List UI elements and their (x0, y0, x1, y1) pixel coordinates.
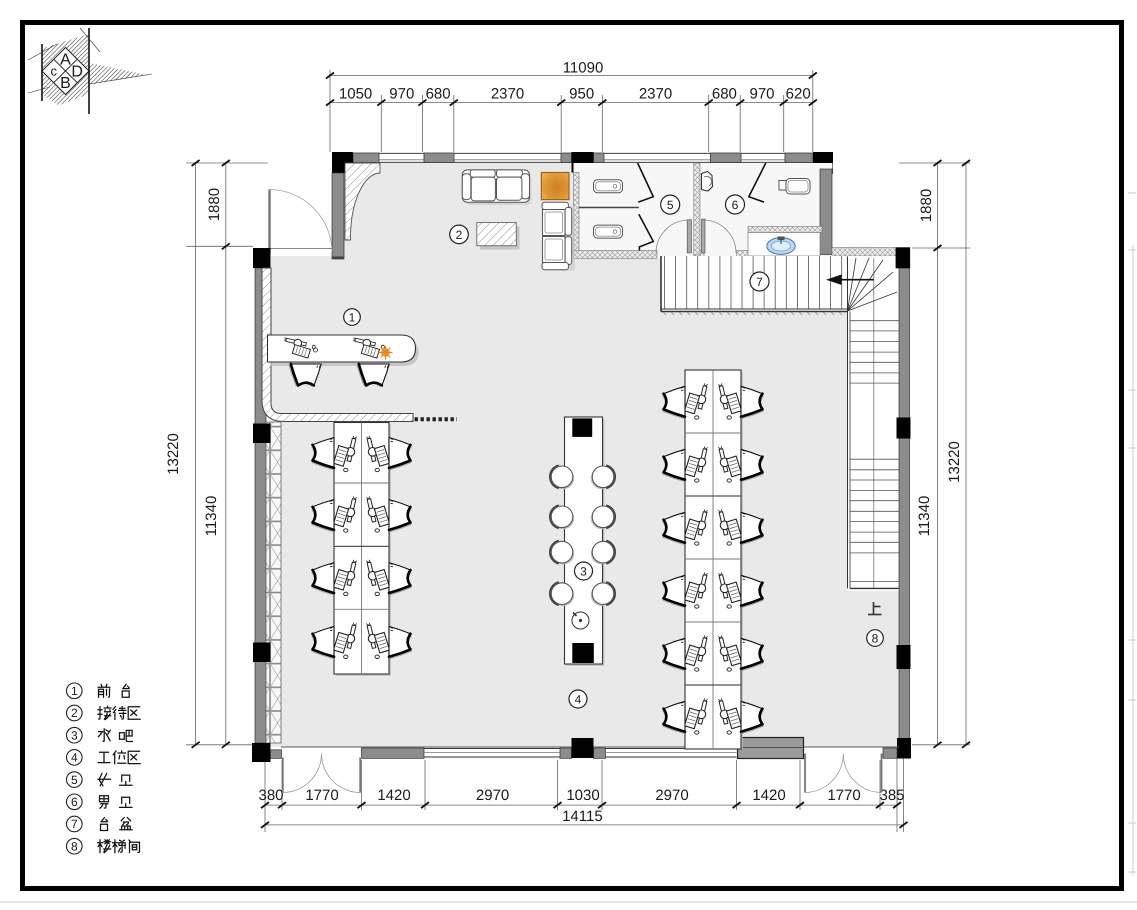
svg-text:2: 2 (71, 706, 78, 720)
svg-text:8: 8 (872, 632, 879, 646)
svg-text:2970: 2970 (655, 787, 688, 804)
svg-text:1770: 1770 (305, 787, 338, 804)
svg-text:680: 680 (712, 86, 737, 103)
svg-text:1030: 1030 (566, 787, 599, 804)
svg-text:2: 2 (456, 228, 463, 242)
svg-text:380: 380 (258, 787, 283, 804)
svg-text:950: 950 (569, 86, 594, 103)
svg-text:2370: 2370 (491, 86, 524, 103)
svg-text:1880: 1880 (918, 189, 935, 222)
svg-text:1770: 1770 (827, 787, 860, 804)
svg-text:1420: 1420 (752, 787, 785, 804)
svg-text:13220: 13220 (946, 441, 963, 483)
svg-text:6: 6 (71, 795, 78, 809)
svg-text:8: 8 (71, 839, 78, 853)
svg-text:5: 5 (71, 773, 78, 787)
svg-text:D: D (71, 64, 83, 81)
svg-text:1: 1 (71, 684, 78, 698)
svg-text:6: 6 (732, 198, 739, 212)
svg-text:1050: 1050 (339, 86, 372, 103)
svg-text:7: 7 (71, 817, 78, 831)
svg-text:970: 970 (389, 86, 414, 103)
svg-text:385: 385 (879, 787, 904, 804)
svg-text:13220: 13220 (165, 433, 182, 475)
svg-text:11340: 11340 (203, 496, 220, 537)
svg-text:1: 1 (349, 311, 356, 325)
svg-text:620: 620 (786, 86, 811, 103)
svg-text:680: 680 (426, 86, 451, 103)
svg-text:5: 5 (667, 198, 674, 212)
svg-text:c: c (50, 64, 57, 79)
svg-text:2370: 2370 (639, 86, 672, 103)
svg-text:7: 7 (756, 275, 763, 289)
svg-text:1880: 1880 (206, 188, 223, 221)
svg-text:4: 4 (71, 751, 78, 765)
svg-text:B: B (60, 75, 71, 92)
svg-text:3: 3 (71, 728, 78, 742)
svg-text:1420: 1420 (377, 787, 410, 804)
svg-text:11090: 11090 (563, 60, 604, 77)
svg-text:4: 4 (575, 693, 582, 707)
svg-text:A: A (60, 52, 71, 69)
svg-text:2970: 2970 (476, 787, 509, 804)
svg-text:11340: 11340 (916, 496, 933, 537)
svg-text:970: 970 (749, 86, 774, 103)
svg-text:3: 3 (580, 565, 587, 579)
svg-text:14115: 14115 (562, 808, 603, 825)
